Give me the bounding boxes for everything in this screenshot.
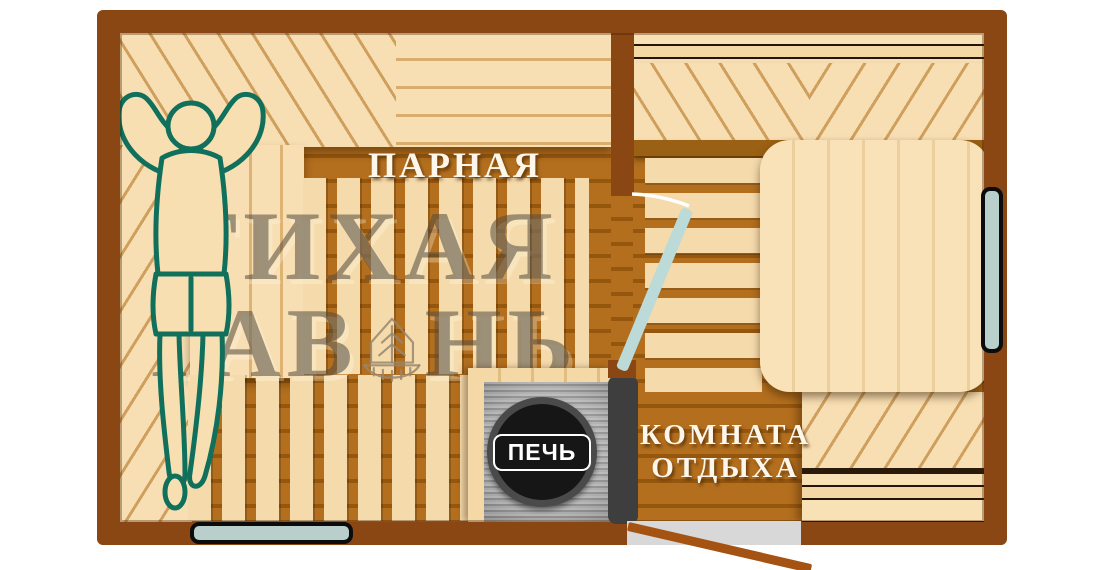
window-bottom — [190, 522, 353, 544]
corner-bench-diagonal-planks — [802, 392, 986, 468]
stove-label: ПЕЧЬ — [493, 434, 592, 471]
brand-emblem-icon — [361, 307, 423, 404]
rest-room-label-line2: ОТДЫХА — [628, 452, 823, 485]
rest-room-label: КОМНАТА ОТДЫХА — [628, 419, 823, 485]
sauna-floor-plan: ТИХАЯ ГАВНЬ ПАРНАЯ КОМНАТА ОТДЫХА ПЕЧЬ — [0, 0, 1100, 570]
rest-corner-bench — [802, 392, 986, 522]
steam-room-label: ПАРНАЯ — [295, 144, 615, 186]
doorway-floor — [611, 196, 634, 368]
heat-shield-wall — [608, 376, 638, 524]
rest-chevron-left-planks — [633, 63, 810, 140]
person-right-leg — [190, 334, 223, 486]
table — [760, 140, 990, 392]
window-right — [981, 187, 1003, 353]
rest-room-label-line1: КОМНАТА — [628, 419, 823, 452]
entrance-threshold — [627, 521, 801, 545]
stove-burner-icon: ПЕЧЬ — [487, 397, 597, 507]
person-head — [168, 103, 214, 149]
corner-bench-horizontal-planks — [802, 474, 986, 522]
steam-top-bench-horizontal-planks — [396, 33, 612, 147]
rest-top-bench-chevron — [633, 63, 986, 140]
person-icon — [106, 78, 276, 525]
person-torso — [156, 151, 226, 275]
person-left-leg — [160, 334, 185, 486]
rest-slat-bench — [645, 158, 762, 392]
rest-chevron-right-planks — [810, 63, 987, 140]
person-left-foot — [165, 476, 185, 508]
rest-top-bench-rail — [633, 33, 986, 63]
